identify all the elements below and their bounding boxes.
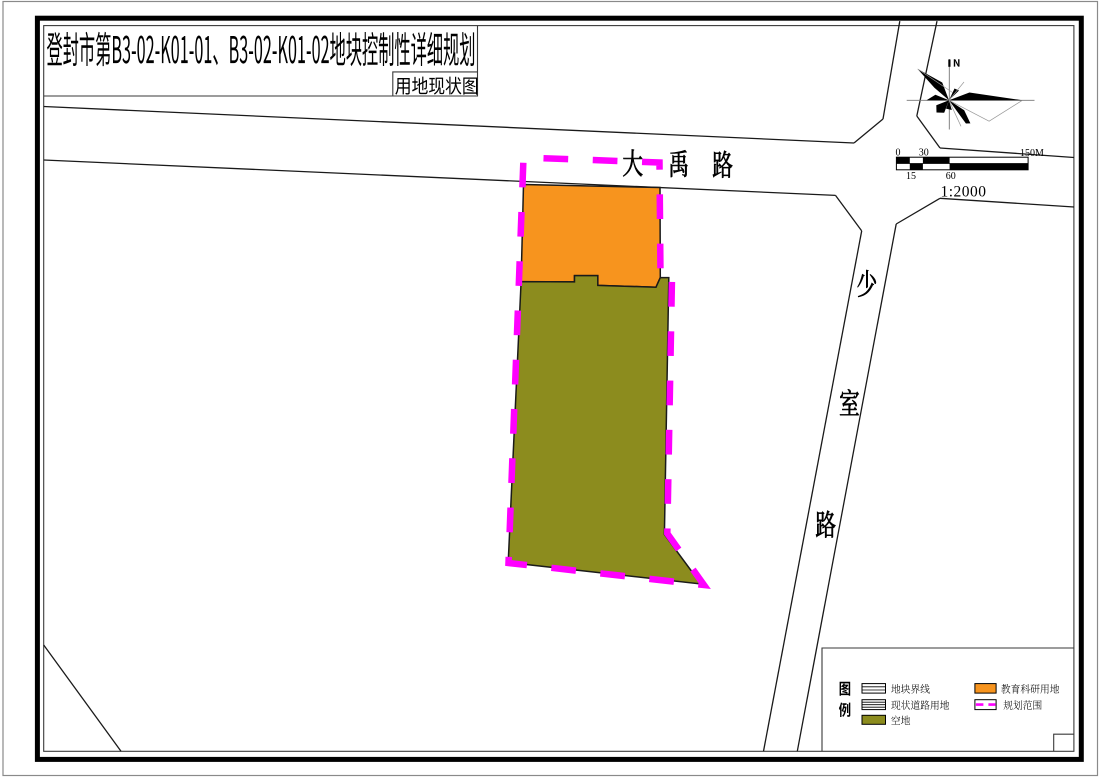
- svg-text:30: 30: [919, 148, 929, 159]
- svg-text:0: 0: [896, 148, 901, 159]
- svg-text:15: 15: [906, 171, 916, 182]
- svg-text:60: 60: [946, 171, 956, 182]
- svg-text:150M: 150M: [1020, 148, 1044, 159]
- svg-text:1:2000: 1:2000: [941, 184, 987, 201]
